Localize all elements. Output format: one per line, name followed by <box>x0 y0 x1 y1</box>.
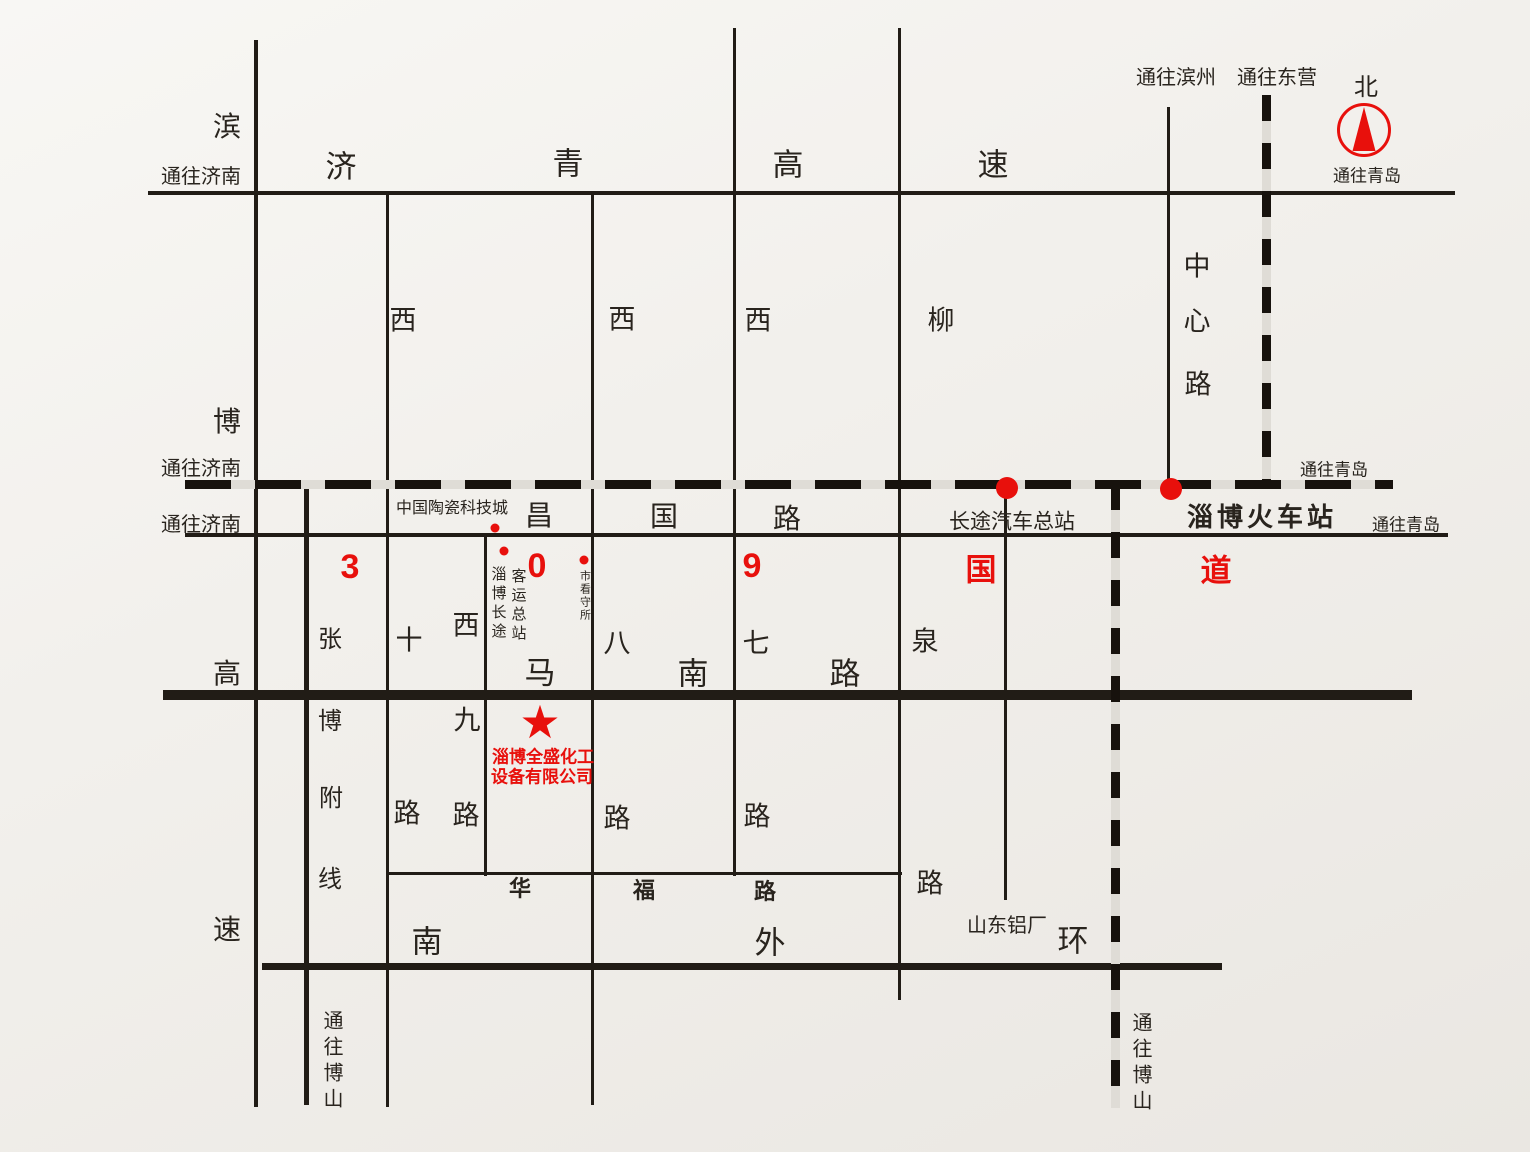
xiba-char-xi: 西 <box>609 307 636 334</box>
xiba-char-ba: 八 <box>604 631 631 658</box>
changguo-char-chang: 昌 <box>525 502 553 530</box>
xijiu-char-jiu: 九 <box>454 708 481 735</box>
location-map: 滨通往济南济青高速通往滨州通往东营北通往青岛西西西柳中心路博通往济南通往济南中国… <box>0 0 1530 1152</box>
manan-char-ma: 马 <box>525 658 556 689</box>
ceramics-city: 中国陶瓷科技城 <box>396 501 508 517</box>
railway-to-boshan <box>1111 484 1120 1108</box>
jiqing-expwy-char-ji: 济 <box>326 152 357 183</box>
huafu-char-hua: 华 <box>509 878 531 900</box>
company-name-line2: 设备有限公司 <box>491 769 593 786</box>
manan-char-nan: 南 <box>678 659 709 690</box>
huafu-char-lu: 路 <box>754 881 776 903</box>
liuquan-char-quan: 泉 <box>912 629 939 656</box>
detention-center: 市看守所 <box>579 570 590 622</box>
jiqing-expressway <box>148 191 1455 195</box>
to-boshan-left: 通往博山 <box>321 1010 341 1114</box>
shandong-aluminum: 山东铝厂 <box>967 916 1047 936</box>
jiqing-expwy-char-gao: 高 <box>773 150 804 181</box>
to-qingdao-compass: 通往青岛 <box>1333 168 1401 185</box>
liuquan-road <box>898 28 901 1000</box>
to-qingdao-railway: 通往青岛 <box>1300 462 1368 479</box>
to-binzhou: 通往滨州 <box>1136 68 1216 88</box>
railway-station-dot <box>1160 478 1182 500</box>
g309-char-guo: 国 <box>966 555 997 586</box>
g309-char-3: 3 <box>341 550 360 584</box>
to-boshan-right: 通往博山 <box>1130 1012 1150 1116</box>
changguo-road <box>185 533 1448 537</box>
changguo-char-guo: 国 <box>650 503 678 531</box>
railway-station: 淄博火车站 <box>1187 504 1337 530</box>
binbo-expwy-char-bin: 滨 <box>213 113 241 141</box>
binbo-expwy-char-bo: 博 <box>213 408 241 436</box>
binbo-expwy-char-gao: 高 <box>213 660 241 688</box>
manan-road <box>163 690 1412 700</box>
bus-terminal-road <box>1004 488 1007 900</box>
to-jinan-changguo: 通往济南 <box>161 515 241 535</box>
railway-jiqing-main <box>185 480 1393 489</box>
xishi-char-shi: 十 <box>396 628 423 655</box>
xiba-char-lu: 路 <box>604 806 631 833</box>
xijiu-char-lu: 路 <box>453 803 480 830</box>
jiqing-expwy-char-su: 速 <box>978 150 1009 181</box>
to-dongying: 通往东营 <box>1237 68 1317 88</box>
coach-station-col-1: 淄博长途 <box>491 566 506 642</box>
xiqi-road <box>733 28 736 876</box>
railway-to-dongying <box>1262 95 1271 488</box>
zhongxin-road <box>1167 107 1170 490</box>
jiqing-expwy-char-qing: 青 <box>553 149 584 180</box>
nanwaihuan-road <box>262 963 1222 970</box>
huafu-road <box>388 872 902 875</box>
zhongxin-char-zhong: 中 <box>1184 254 1211 281</box>
xijiu-road <box>484 535 487 876</box>
zhangbo-branch-line <box>304 486 309 1105</box>
nanwaihuan-char-wai: 外 <box>755 928 786 959</box>
bus-terminal: 长途汽车总站 <box>949 512 1075 533</box>
compass-north-icon <box>1335 101 1393 159</box>
g309-char-0: 0 <box>528 549 547 583</box>
to-qingdao-changguo: 通往青岛 <box>1372 517 1440 534</box>
coach-station-dot <box>500 547 509 556</box>
bus-terminal-dot <box>996 477 1018 499</box>
to-jinan-railway: 通往济南 <box>161 459 241 479</box>
zhongxin-char-lu: 路 <box>1185 372 1212 399</box>
zhangbo-char-xian: 线 <box>318 868 342 892</box>
nanwaihuan-char-huan: 环 <box>1058 926 1089 957</box>
xishi-char-xi: 西 <box>390 308 417 335</box>
binbo-expwy-char-su: 速 <box>213 916 241 944</box>
company-star-marker: ★ <box>519 699 560 745</box>
liuquan-char-lu: 路 <box>917 871 944 898</box>
binbo-expressway <box>254 40 258 1107</box>
xishi-char-lu: 路 <box>394 801 421 828</box>
xiba-road <box>591 193 594 1105</box>
xiqi-char-lu: 路 <box>744 804 771 831</box>
zhangbo-char-zhang: 张 <box>318 628 342 652</box>
huafu-char-fu: 福 <box>633 880 655 902</box>
changguo-char-lu: 路 <box>773 505 801 533</box>
manan-char-lu: 路 <box>830 659 861 690</box>
ceramics-city-dot <box>491 524 500 533</box>
to-jinan-top: 通往济南 <box>161 167 241 187</box>
xiqi-char-xi: 西 <box>745 308 772 335</box>
nanwaihuan-char-nan: 南 <box>412 927 443 958</box>
north-char: 北 <box>1354 76 1378 100</box>
zhangbo-char-fu: 附 <box>319 787 343 811</box>
company-name-line1: 淄博全盛化工 <box>492 749 594 766</box>
xijiu-char-xi: 西 <box>453 613 480 640</box>
liuquan-char-liu: 柳 <box>928 308 955 335</box>
xiqi-char-qi: 七 <box>743 631 770 658</box>
detention-center-dot <box>580 556 589 565</box>
zhangbo-char-bo: 博 <box>318 710 342 734</box>
g309-char-9: 9 <box>743 549 762 583</box>
coach-station-col-2: 客运总站 <box>511 568 526 644</box>
zhongxin-char-xin: 心 <box>1184 309 1211 336</box>
g309-char-dao: 道 <box>1201 556 1232 587</box>
